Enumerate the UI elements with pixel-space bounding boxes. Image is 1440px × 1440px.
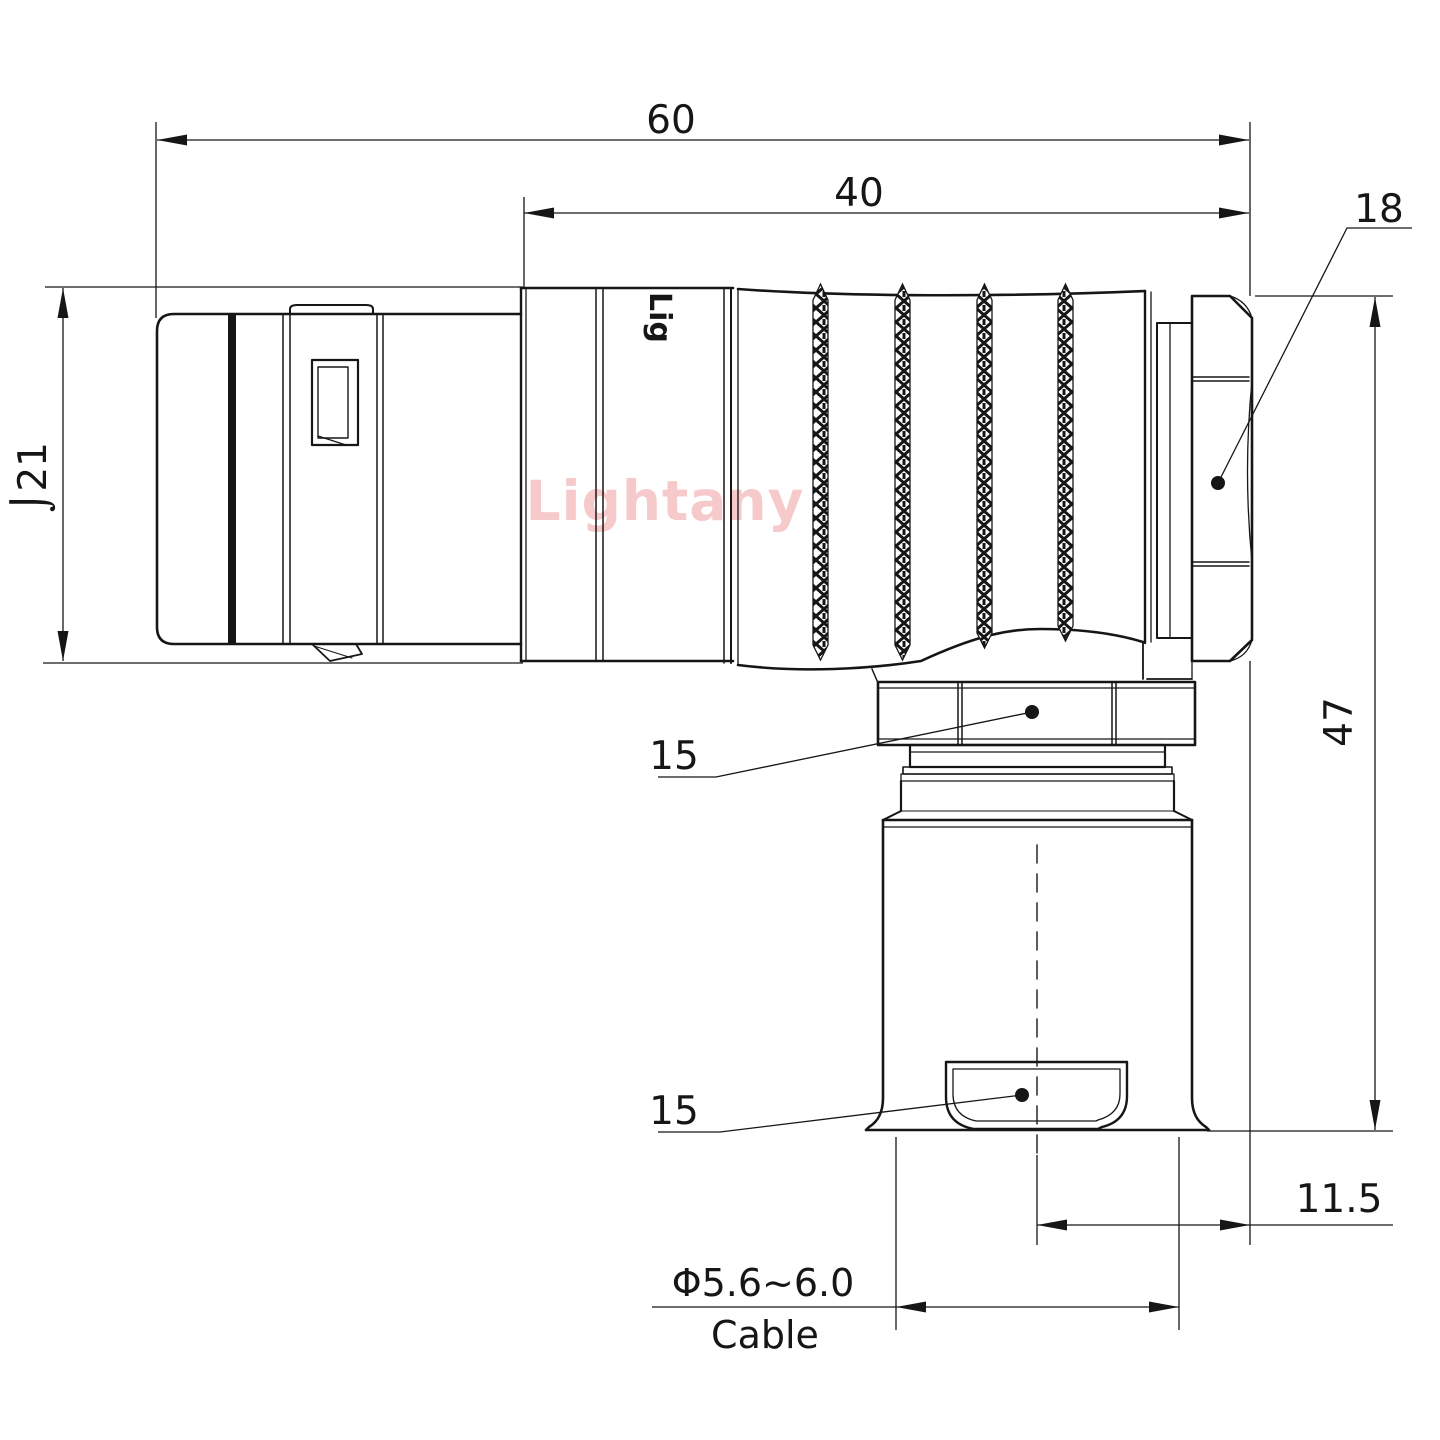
leader-15-lower-label: 15 [649, 1089, 699, 1134]
leader-15-lower: 15 [649, 1088, 1029, 1134]
watermark-text: Lightany [526, 469, 805, 533]
leader-dot [1015, 1088, 1029, 1102]
dim-47-label: 47 [1317, 697, 1362, 747]
dim-arrow [1219, 208, 1249, 219]
leader-dot [1025, 705, 1039, 719]
technical-drawing-page: Lightany Lig [0, 0, 1440, 1440]
leader-dot [1211, 476, 1225, 490]
dim-arrow [1149, 1302, 1179, 1313]
dim-arrow [157, 135, 187, 146]
dim-diameter-21: ⌡21 [9, 287, 523, 663]
gland-steps [883, 745, 1192, 820]
dim-11-5-label: 11.5 [1296, 1177, 1383, 1222]
dim-arrow [58, 288, 69, 318]
dim-arrow [524, 208, 554, 219]
latch-window [312, 360, 358, 445]
dim-arrow [1219, 135, 1249, 146]
elbow-transition [872, 642, 1192, 683]
cable-diameter-label: Φ5.6~6.0 [672, 1261, 855, 1305]
dim-arrow [1220, 1220, 1250, 1231]
hex-nut-facet-lines [1192, 377, 1249, 566]
knurl-shell-top-edge [738, 289, 1145, 295]
left-end-cap [157, 305, 521, 661]
latch-tab [312, 644, 362, 661]
cap-dark-band [228, 314, 236, 644]
leader-18-label: 18 [1354, 187, 1404, 232]
knurl-band-1 [813, 284, 828, 660]
dim-diameter-21-label: ⌡21 [9, 442, 56, 512]
knurl-band-2 [895, 284, 910, 660]
cap-section-lines [283, 314, 383, 644]
connector-dimension-drawing: Lightany Lig [0, 0, 1440, 1440]
dim-40-label: 40 [834, 171, 884, 216]
cable-caption-label: Cable [711, 1313, 819, 1357]
dim-arrow [1370, 1100, 1381, 1130]
knurl-band-4 [1058, 284, 1073, 641]
dim-arrow [58, 631, 69, 661]
cap-top-tab [290, 305, 373, 314]
leader-15-upper-label: 15 [649, 734, 699, 779]
knurl-shell-bottom-edge [738, 629, 1143, 669]
hex-nut-facet-arcs [1230, 296, 1252, 661]
dim-40: 40 [524, 171, 1249, 288]
leader-18: 18 [1211, 187, 1412, 490]
cable-gland-body [866, 820, 1209, 1155]
dim-60: 60 [156, 98, 1250, 1245]
dim-47: 47 [1207, 296, 1393, 1131]
dim-arrow [896, 1302, 926, 1313]
dim-arrow [1037, 1220, 1067, 1231]
dim-cable: Φ5.6~6.0 Cable [652, 1137, 1179, 1357]
cap-outline [157, 314, 521, 644]
rear-washer [1157, 323, 1192, 638]
knurl-band-3 [977, 284, 992, 648]
dim-11-5: 11.5 [1037, 1155, 1393, 1245]
dim-arrow [1370, 297, 1381, 327]
knurl-bands [813, 284, 1073, 660]
dim-60-label: 60 [646, 98, 696, 143]
shell-logo-text: Lig [642, 292, 677, 343]
